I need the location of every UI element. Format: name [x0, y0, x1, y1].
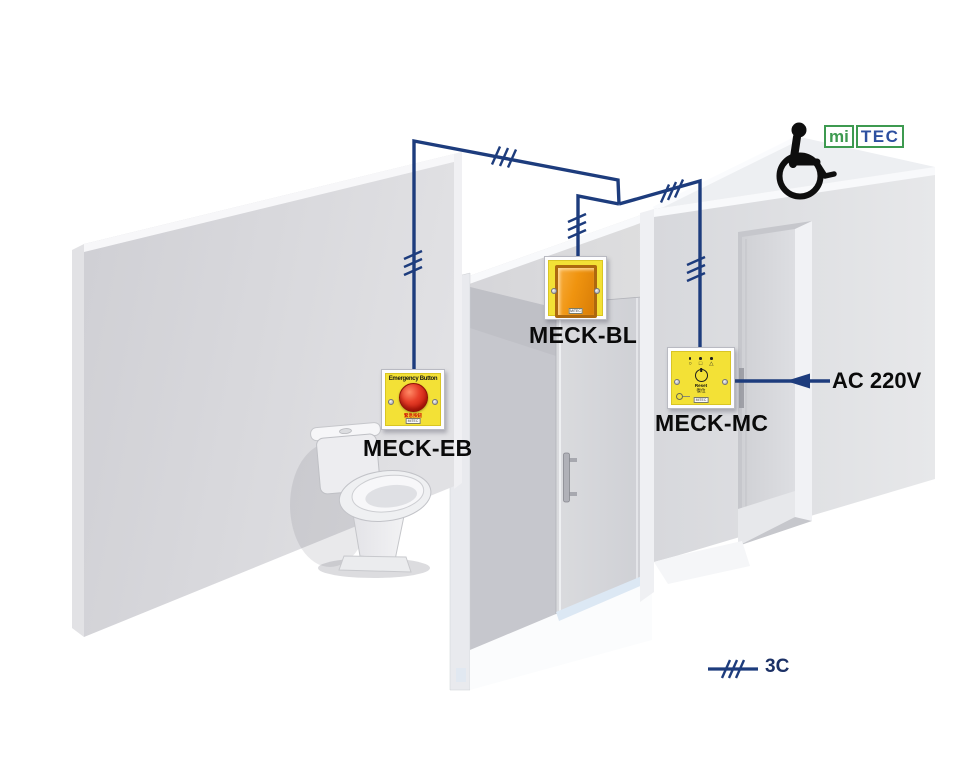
mc-indicator-icon: △ [709, 361, 713, 367]
meck-bl-label: MECK-BL [529, 322, 637, 349]
legend-line [708, 660, 758, 678]
led-dot-icon [710, 357, 713, 360]
cable-legend-label: 3C [765, 656, 789, 678]
mc-indicator-icon: □ [699, 361, 702, 367]
brand-label: MiTEC [694, 397, 709, 403]
emergency-button-title: Emergency Button [386, 376, 440, 382]
reset-tick-icon [700, 368, 702, 372]
meck-eb-label: MECK-EB [363, 435, 472, 462]
emergency-push-button-icon [399, 383, 428, 412]
mc-indicator-icon: ○ [689, 361, 692, 367]
door-edge-handle-icon [739, 368, 744, 408]
logo-mi: mi [824, 125, 854, 148]
led-dot-icon [689, 357, 692, 360]
led-dot-icon [699, 357, 702, 360]
screw-icon [674, 379, 680, 385]
meck-bl-panel: MiTEC [544, 256, 607, 320]
brand-label: MiTEC [568, 308, 583, 314]
meck-mc-panel: ○ □ △ Reset 復位 MiTEC [667, 347, 735, 409]
screw-icon [388, 399, 394, 405]
logo-tec: TEC [856, 125, 905, 148]
mitec-logo: mi TEC [824, 125, 904, 148]
meck-mc-faceplate: ○ □ △ Reset 復位 MiTEC [671, 351, 731, 405]
room-illustration [0, 0, 960, 773]
diagram-canvas: Emergency Button 緊急按鈕 MiTEC MECK-EB MiTE… [0, 0, 960, 773]
meck-eb-faceplate: Emergency Button 緊急按鈕 MiTEC [385, 373, 441, 426]
meck-eb-panel: Emergency Button 緊急按鈕 MiTEC [381, 369, 445, 430]
screw-icon [551, 288, 557, 294]
mc-indicator-row: ○ □ △ [672, 357, 730, 367]
screw-icon [432, 399, 438, 405]
screw-icon [722, 379, 728, 385]
meck-bl-faceplate: MiTEC [548, 260, 603, 316]
screw-icon [594, 288, 600, 294]
meck-mc-label: MECK-MC [655, 410, 768, 437]
ac-power-label: AC 220V [832, 368, 921, 394]
reset-label-zh: 復位 [672, 388, 730, 393]
reset-button-icon [695, 369, 708, 382]
mc-mini-logo-icon [676, 393, 683, 400]
brand-label: MiTEC [406, 418, 421, 424]
legend-core-marks-icon [722, 660, 744, 678]
